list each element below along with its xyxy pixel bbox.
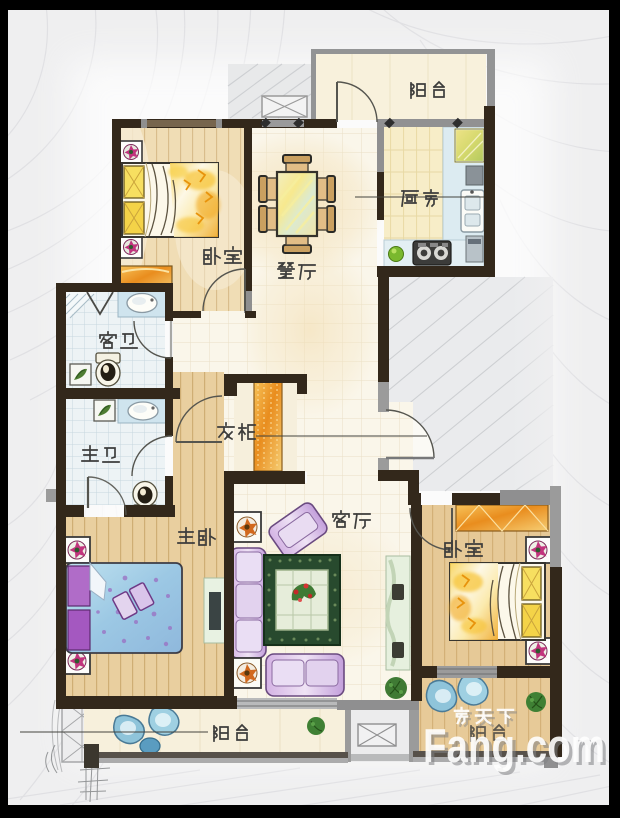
svg-text:Fang.com: Fang.com bbox=[423, 719, 605, 772]
